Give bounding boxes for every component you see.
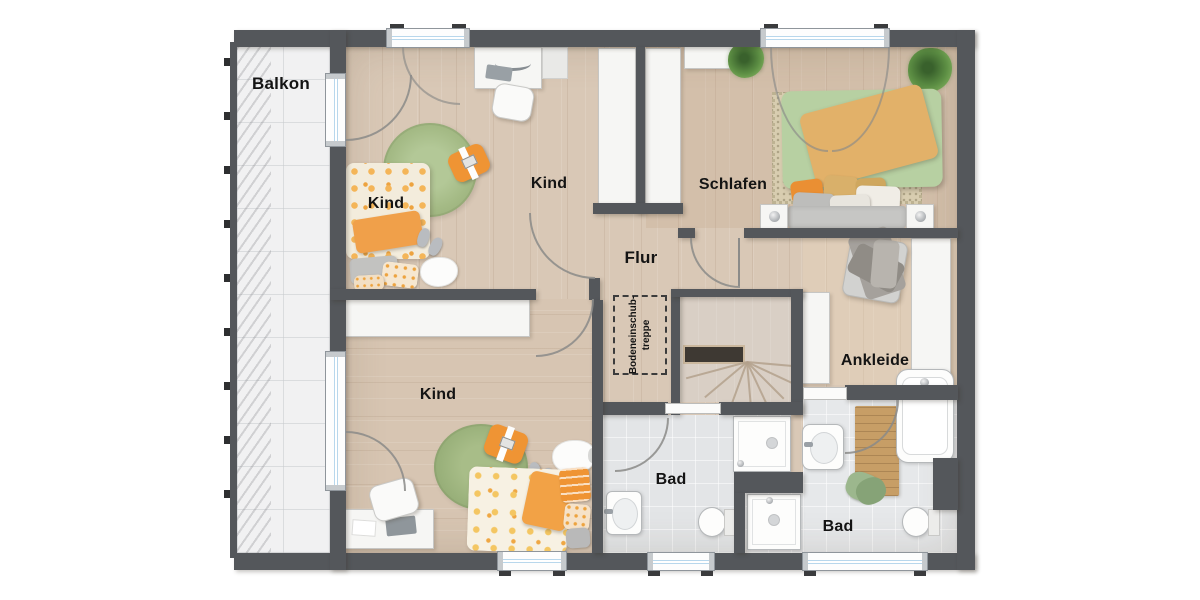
wall-stair-bottom-right: [719, 402, 803, 415]
sink-faucet: [804, 442, 813, 447]
papers: [351, 519, 376, 537]
desk-return: [542, 47, 568, 79]
room-label-balcony: Balkon: [252, 74, 310, 94]
window: [386, 28, 470, 48]
attic-stair-label-line1: Bodeneinschub-: [628, 296, 639, 374]
shower-drain: [766, 437, 778, 449]
clothes-pile: [870, 239, 900, 289]
pillow-orange-striped: [559, 467, 592, 503]
wall-stub: [589, 278, 600, 300]
nightstand-knob: [769, 211, 780, 222]
floor-plan: Balkon Kind Kind Schlafen Flur Kind Ankl…: [0, 0, 1200, 600]
wall-bedroom-bottom-left: [678, 228, 695, 238]
balcony-shading: [237, 47, 271, 553]
door-threshold: [665, 403, 721, 414]
door-threshold: [803, 387, 847, 400]
room-label-hallway: Flur: [625, 248, 658, 268]
toilet: [698, 507, 726, 537]
wall-childbottom-right: [592, 300, 603, 553]
window: [497, 551, 567, 571]
wall-dressing-bottom: [845, 385, 958, 400]
door-leaf: [738, 238, 740, 286]
room-label-bedroom: Schlafen: [699, 176, 767, 194]
wardrobe-long: [342, 297, 530, 337]
wall-bedroom-bottom: [744, 228, 958, 238]
wardrobe: [645, 48, 681, 204]
wall-stair-right: [791, 289, 803, 415]
toilet: [902, 507, 930, 537]
balcony-door: [325, 351, 346, 491]
window: [760, 28, 890, 48]
wardrobe: [911, 238, 951, 384]
pillow-gray: [565, 527, 590, 549]
wall-below-closets: [593, 203, 683, 214]
bed-child-bottom: [468, 464, 592, 554]
pillow-dotted: [381, 261, 420, 289]
balcony-door: [325, 73, 346, 147]
balcony-railing-ticks: [224, 58, 230, 544]
nightstand-knob: [915, 211, 926, 222]
toilet-tank: [928, 509, 940, 536]
sink-faucet: [604, 509, 613, 514]
room-label-child-top: Kind: [368, 195, 404, 213]
wall-stair-bottom-left: [598, 402, 668, 415]
stair-opening: [683, 345, 745, 364]
room-label-dressing: Ankleide: [841, 352, 909, 370]
room-label-bath-right: Bad: [823, 518, 854, 536]
room-label-child-middle: Kind: [531, 175, 567, 193]
wardrobe: [598, 48, 636, 204]
attic-stair-label: Bodeneinschub- treppe: [627, 296, 653, 374]
wall-child-bedroom: [636, 47, 645, 213]
shower-faucet: [737, 460, 744, 467]
desk-chair: [490, 82, 535, 123]
shower-faucet: [766, 497, 773, 504]
wardrobe: [800, 292, 830, 384]
wall-bath-divider-v: [734, 493, 745, 553]
wall-outer-right: [957, 30, 975, 570]
wall-childbottom-top: [330, 289, 536, 300]
balcony-railing: [230, 42, 237, 558]
shower-drain: [768, 514, 780, 526]
sink-basin: [810, 432, 838, 464]
sink-basin: [612, 498, 638, 530]
wall-bath-divider-h: [734, 472, 803, 493]
room-label-bath-left: Bad: [656, 471, 687, 489]
window: [802, 552, 928, 571]
wall-stair-left: [671, 289, 680, 415]
attic-stair-label-line2: treppe: [641, 320, 652, 351]
window: [647, 552, 715, 571]
shower-rim: [738, 421, 786, 467]
wall-bathtub-stub: [933, 458, 958, 510]
bed-child-top: [346, 163, 430, 291]
room-label-child-bottom: Kind: [420, 386, 456, 404]
wall-stair-top: [671, 289, 803, 297]
bed-frame: [788, 206, 906, 228]
